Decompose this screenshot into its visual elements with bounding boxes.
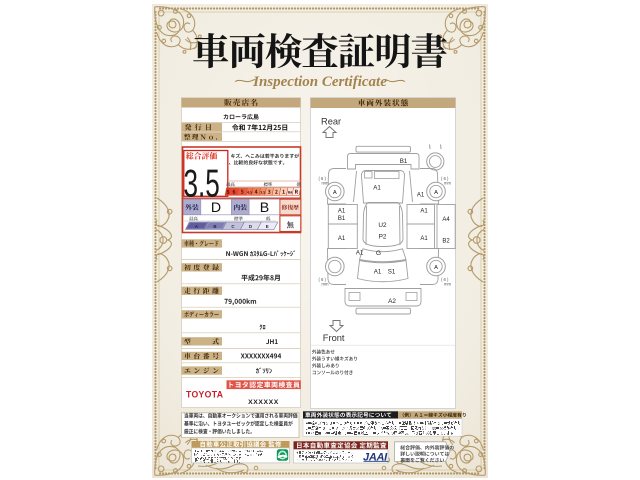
svg-text:A: A [434, 190, 438, 196]
svg-text:B1: B1 [338, 216, 346, 222]
svg-text:mm: mm [322, 181, 329, 186]
svg-text:U2: U2 [378, 222, 387, 229]
svg-text:A: A [434, 265, 438, 271]
svg-text:A2: A2 [388, 298, 396, 305]
svg-text:G: G [376, 250, 381, 257]
svg-text:D: D [211, 200, 221, 216]
svg-text:mm: mm [444, 282, 451, 287]
svg-text:D: D [249, 224, 252, 229]
svg-text:E: E [266, 224, 269, 229]
svg-text:TOYOTA: TOYOTA [186, 389, 223, 400]
svg-text:B2: B2 [442, 239, 450, 245]
svg-text:A: A [333, 190, 337, 196]
svg-text:mm: mm [444, 181, 451, 186]
svg-text:B: B [260, 200, 269, 216]
svg-text:P2: P2 [379, 234, 387, 241]
svg-text:A1: A1 [417, 193, 425, 199]
svg-text:A1: A1 [373, 184, 381, 191]
svg-text:B1: B1 [400, 158, 408, 165]
svg-text:A1: A1 [374, 268, 382, 275]
svg-text:A1: A1 [420, 236, 428, 242]
svg-text:Rear: Rear [321, 116, 341, 126]
svg-text:Inspection Certificate: Inspection Certificate [252, 74, 387, 90]
svg-text:Front: Front [323, 333, 345, 343]
svg-text:mm: mm [322, 282, 329, 287]
svg-text:A1: A1 [420, 209, 428, 215]
svg-text:A1: A1 [338, 209, 346, 215]
svg-text:A4: A4 [442, 217, 450, 223]
svg-text:XXXXXX: XXXXXX [248, 399, 279, 406]
svg-text:B: B [213, 224, 216, 229]
svg-text:A1: A1 [338, 236, 346, 242]
svg-text:S1: S1 [388, 268, 396, 275]
svg-text:A1: A1 [356, 251, 364, 257]
